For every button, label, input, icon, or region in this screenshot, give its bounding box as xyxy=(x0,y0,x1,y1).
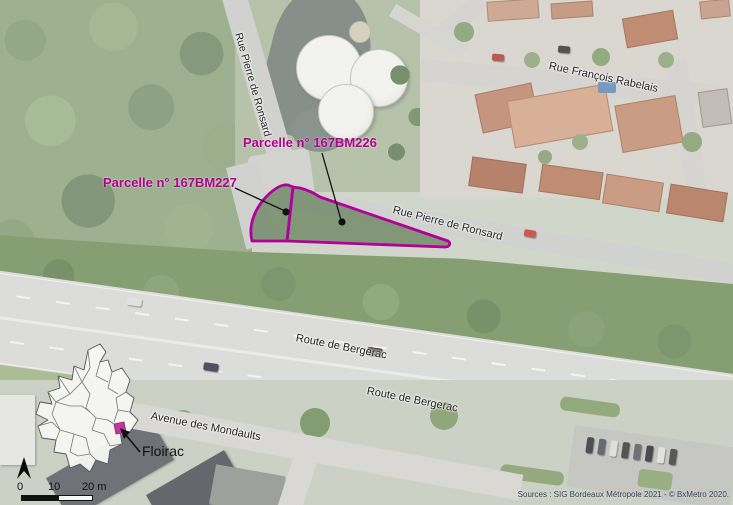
north-arrow-icon xyxy=(17,457,31,479)
floirac-arrow-line xyxy=(125,434,140,452)
scale-tick-10: 10 xyxy=(48,481,60,493)
scale-bar-segment-filled xyxy=(21,495,58,501)
map-attribution: Sources : SIG Bordeaux Métropole 2021 - … xyxy=(518,490,729,499)
leader-dot-226 xyxy=(338,218,345,225)
parcel-227-label: Parcelle n° 167BM227 xyxy=(103,175,237,190)
scale-tick-20: 20 m xyxy=(82,481,106,493)
scale-tick-0: 0 xyxy=(17,481,23,493)
inset-commune-label: Floirac xyxy=(142,443,184,459)
scale-bar-segment-empty xyxy=(58,495,93,501)
inset-outer-boundary xyxy=(36,344,138,472)
leader-dot-227 xyxy=(282,208,289,215)
map-canvas[interactable]: Parcelle n° 167BM226 Parcelle n° 167BM22… xyxy=(0,0,733,505)
inset-commune-map xyxy=(36,344,138,472)
